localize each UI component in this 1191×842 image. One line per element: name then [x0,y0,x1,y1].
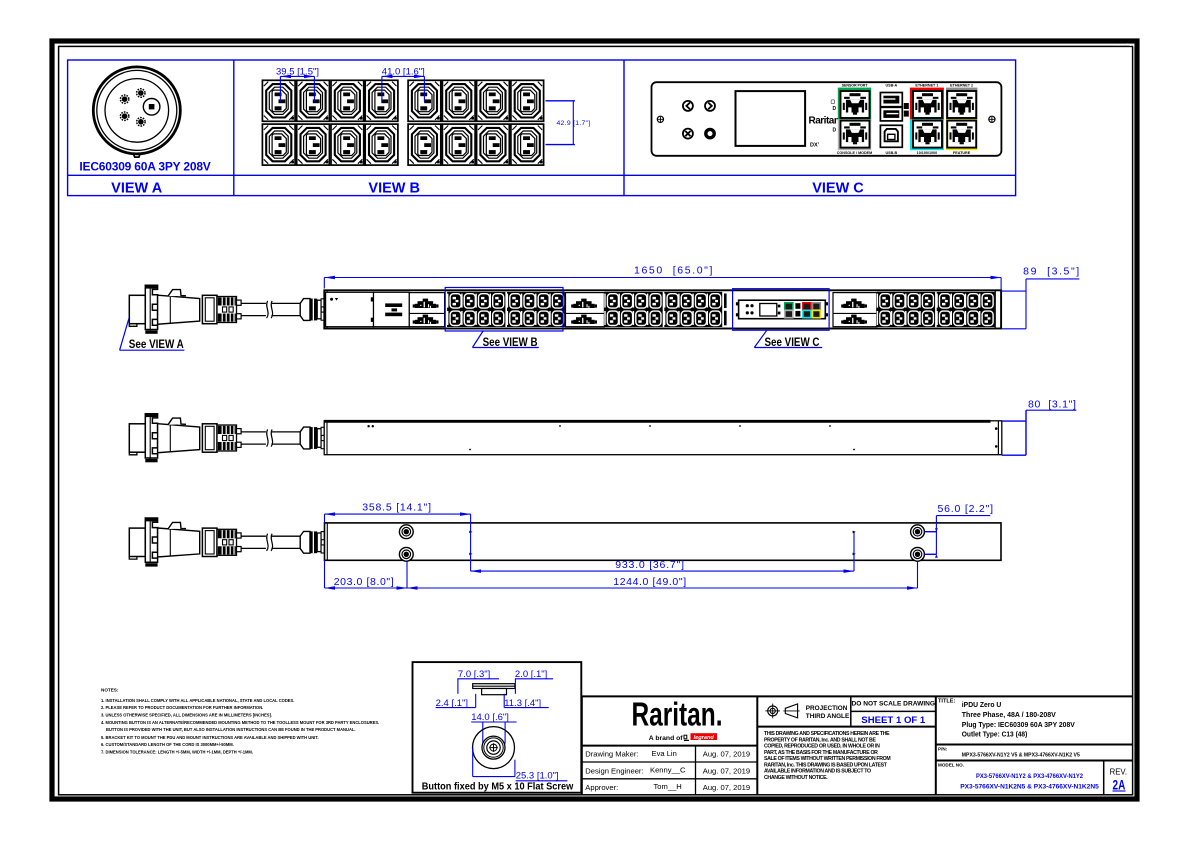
svg-text:legrand: legrand [694,735,715,741]
svg-text:Drawing Maker:: Drawing Maker: [585,750,638,759]
svg-text:COPIED, REPRODUCED OR USED, IN: COPIED, REPRODUCED OR USED, IN WHOLE OR … [764,744,880,750]
svg-text:Outlet Type: C13 (48): Outlet Type: C13 (48) [962,730,1028,739]
svg-text:iPDU Zero U: iPDU Zero U [962,700,1002,709]
svg-text:Button fixed by M5 x 10 Flat S: Button fixed by M5 x 10 Flat Screw [422,782,574,793]
svg-text:7.0 [.3"]: 7.0 [.3"] [458,669,490,680]
svg-text:THIRD ANGLE: THIRD ANGLE [806,713,850,720]
svg-text:25.3 [1.0"]: 25.3 [1.0"] [516,771,559,782]
svg-text:Kenny__C: Kenny__C [650,766,686,775]
svg-text:2A: 2A [1113,778,1126,793]
svg-text:BUTTON IS PROVIDED WITH THE UN: BUTTON IS PROVIDED WITH THE UNIT, BUT AL… [106,727,356,732]
svg-text:80 [3.1"]: 80 [3.1"] [1028,399,1077,411]
svg-text:REV.: REV. [1110,767,1127,776]
svg-text:Aug. 07, 2019: Aug. 07, 2019 [703,750,750,759]
svg-text:14.0 [.6"]: 14.0 [.6"] [471,712,509,723]
svg-text:5. BRACKET KIT TO MOUNT THE PD: 5. BRACKET KIT TO MOUNT THE PDU AND MOUN… [101,735,319,740]
svg-text:MODEL NO.: MODEL NO. [938,762,964,767]
svg-text:89 [3.5"]: 89 [3.5"] [1023,266,1081,278]
svg-text:See VIEW A: See VIEW A [129,337,184,351]
svg-text:358.5 [14.1"]: 358.5 [14.1"] [362,502,432,514]
svg-text:42.9 [1.7"]: 42.9 [1.7"] [556,120,590,127]
svg-text:DX’: DX’ [810,143,820,149]
svg-text:TITLE:: TITLE: [938,699,956,705]
svg-text:P/N:: P/N: [938,747,948,752]
svg-text:10/100/1000: 10/100/1000 [917,151,938,155]
svg-text:Plug Type: IEC60309 60A 3PY 20: Plug Type: IEC60309 60A 3PY 208V [962,720,1076,729]
svg-text:Raritan.: Raritan. [632,695,723,732]
svg-text:Three Phase, 48A / 180-208V: Three Phase, 48A / 180-208V [962,710,1057,719]
svg-text:▢: ▢ [831,99,836,105]
svg-text:RARITAN, Inc. THIS DRAWING IS: RARITAN, Inc. THIS DRAWING IS BASED UPON… [764,762,888,768]
svg-text:Tom__H: Tom__H [654,782,682,791]
svg-text:USB-B: USB-B [885,151,897,155]
svg-text:VIEW B: VIEW B [368,180,420,196]
svg-text:1650 [65.0"]: 1650 [65.0"] [634,264,714,276]
svg-text:FEATURE: FEATURE [953,151,971,155]
svg-text:D: D [833,106,837,112]
svg-text:D: D [833,128,837,134]
svg-text:THIS DRAWING AND SPECIFICATION: THIS DRAWING AND SPECIFICATIONS HEREIN A… [764,731,890,737]
svg-text:Aug. 07, 2019: Aug. 07, 2019 [703,783,750,792]
svg-text:2.0 [.1"]: 2.0 [.1"] [515,669,547,680]
svg-text:7. DIMENSION TOLERANCE: LENGTH: 7. DIMENSION TOLERANCE: LENGTH +/-5MM, W… [101,750,253,755]
svg-text:PX3-5766XV-N1K2N5 & PX3-4766XV: PX3-5766XV-N1K2N5 & PX3-4766XV-N1K2N5 [960,783,1099,790]
svg-text:56.0 [2.2"]: 56.0 [2.2"] [938,503,994,515]
svg-text:4. MOUNTING BUTTON IS AN ALTER: 4. MOUNTING BUTTON IS AN ALTERNATE/RECOM… [101,720,379,725]
svg-text:ETHERNET 1: ETHERNET 1 [915,84,938,88]
svg-text:2. PLEASE REFER TO PRODUCT DOC: 2. PLEASE REFER TO PRODUCT DOCUMENTATION… [101,705,263,710]
svg-text:VIEW A: VIEW A [111,180,163,196]
svg-text:SALE OF ITEMS WITHOUT WRITTEN: SALE OF ITEMS WITHOUT WRITTEN PERMISSION… [764,756,890,762]
svg-text:933.0 [36.7"]: 933.0 [36.7"] [615,559,685,571]
svg-text:SHEET 1 OF 1: SHEET 1 OF 1 [861,715,926,726]
svg-text:PROPERTY OF RARITAN, Inc. AND: PROPERTY OF RARITAN, Inc. AND SHALL NOT … [764,737,876,743]
svg-text:AVAILABLE INFORMATION AND IS S: AVAILABLE INFORMATION AND IS SUBJECT TO [764,769,871,775]
svg-text:CONSOLE / MODEM: CONSOLE / MODEM [837,151,872,155]
svg-text:Approver:: Approver: [585,783,618,792]
svg-text:PART, AS THE BASIS FOR THE MAN: PART, AS THE BASIS FOR THE MANUFACTURE O… [764,750,878,756]
svg-text:DO NOT SCALE DRAWING: DO NOT SCALE DRAWING [852,700,936,707]
svg-text:SENSOR PORT: SENSOR PORT [842,84,869,88]
svg-text:1244.0 [49.0"]: 1244.0 [49.0"] [613,576,686,588]
svg-text:Design Engineer:: Design Engineer: [585,766,643,775]
svg-text:PX3-5766XV-N1Y2 & PX3-4766XV-N: PX3-5766XV-N1Y2 & PX3-4766XV-N1Y2 [976,773,1083,780]
svg-text:CHANGE WITHOUT NOTICE.: CHANGE WITHOUT NOTICE. [764,775,828,781]
svg-text:A brand of: A brand of [649,735,683,742]
svg-text:1. INSTALLATION SHALL COMPLY W: 1. INSTALLATION SHALL COMPLY WITH ALL AP… [101,698,294,703]
svg-text:ETHERNET 2: ETHERNET 2 [950,84,973,88]
svg-text:USB-A: USB-A [885,84,897,88]
svg-text:Raritan: Raritan [809,115,840,126]
svg-text:NOTES:: NOTES: [101,688,119,693]
svg-text:IEC60309 60A 3PY 208V: IEC60309 60A 3PY 208V [79,160,210,174]
svg-text:39.5 [1.5"]: 39.5 [1.5"] [276,66,319,77]
svg-text:3. UNLESS OTHERWISE SPECIFIED,: 3. UNLESS OTHERWISE SPECIFIED, ALL DIMEN… [101,713,272,718]
svg-text:6. CUSTOM/STANDARD LENGTH OF T: 6. CUSTOM/STANDARD LENGTH OF THE CORD IS… [101,742,234,747]
svg-text:MPX3-5766XV-N1Y2 V5 & MPX3-476: MPX3-5766XV-N1Y2 V5 & MPX3-4766XV-N1K2 V… [962,753,1080,759]
svg-text:Aug. 07, 2019: Aug. 07, 2019 [703,766,750,775]
svg-text:41.0 [1.6"]: 41.0 [1.6"] [382,66,425,77]
svg-text:VIEW C: VIEW C [812,180,864,196]
svg-text:PROJECTION: PROJECTION [806,705,848,712]
svg-text:203.0 [8.0"]: 203.0 [8.0"] [334,576,395,588]
svg-text:Eva Lin: Eva Lin [652,749,677,758]
